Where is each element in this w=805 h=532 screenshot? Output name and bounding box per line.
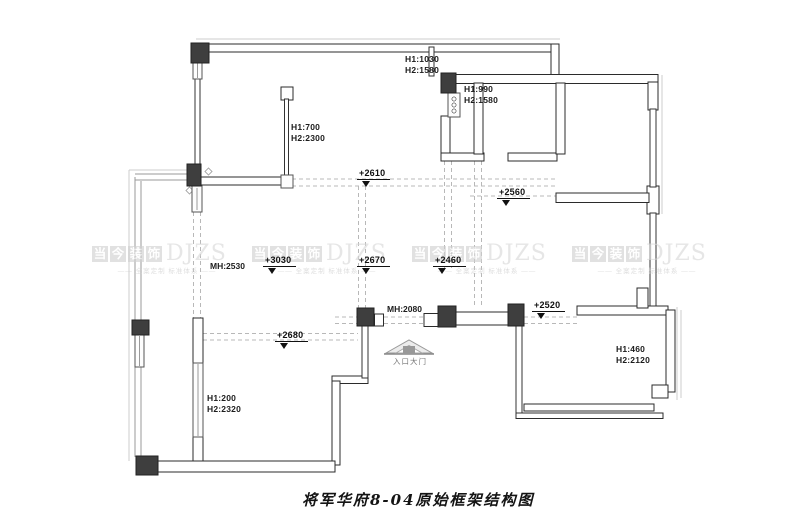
window-height-label: H1:700 H2:2300 (291, 122, 325, 145)
level-value: +2460 (433, 255, 466, 267)
door-height-label: MH:2080 (387, 304, 422, 314)
h1-value: H1:460 (616, 344, 650, 355)
h1-value: H1:700 (291, 122, 325, 133)
window-height-label: H1:460 H2:2120 (616, 344, 650, 367)
entrance-arrow-icon (384, 340, 434, 354)
level-flag-icon (268, 268, 276, 274)
door-height-label: MH:2530 (210, 261, 245, 271)
floor-plan-page: 当 今 装 饰 DJZS —— 全案定制 标准体系 —— 当 今 装 饰 DJZ… (0, 0, 805, 532)
level-value: +3030 (263, 255, 296, 267)
windows (135, 62, 460, 437)
level-flag-icon (438, 268, 446, 274)
h2-value: H2:2120 (616, 355, 650, 366)
entrance-label: 入口大门 (393, 356, 427, 367)
level-value: +2520 (532, 300, 565, 312)
level-flag-icon (280, 343, 288, 349)
level-value: +2610 (357, 168, 390, 180)
level-value: +2680 (275, 330, 308, 342)
level-mark: +2460 (433, 250, 466, 274)
h1-value: H1:200 (207, 393, 241, 404)
level-value: +2560 (497, 187, 530, 199)
level-mark: +3030 (263, 250, 296, 274)
level-mark: +2680 (275, 325, 308, 349)
level-flag-icon (362, 268, 370, 274)
h1-value: H1:990 (464, 84, 498, 95)
outer-party-wall (135, 174, 191, 457)
level-flag-icon (362, 181, 370, 187)
h2-value: H2:2320 (207, 404, 241, 415)
h2-value: H2:1580 (405, 65, 439, 76)
h1-value: H1:1030 (405, 54, 439, 65)
window-height-label: H1:200 H2:2320 (207, 393, 241, 416)
window-height-label: H1:1030 H2:1580 (405, 54, 439, 77)
window-height-label: H1:990 H2:1580 (464, 84, 498, 107)
level-mark: +2520 (532, 295, 565, 319)
level-value: +2670 (357, 255, 390, 267)
h2-value: H2:1580 (464, 95, 498, 106)
floor-plan-drawing (0, 0, 805, 532)
h2-value: H2:2300 (291, 133, 325, 144)
level-flag-icon (502, 200, 510, 206)
level-flag-icon (537, 313, 545, 319)
level-mark: +2610 (357, 163, 390, 187)
level-mark: +2670 (357, 250, 390, 274)
plan-title: 将军华府8-04原始框架结构图 (302, 489, 535, 510)
level-mark: +2560 (497, 182, 530, 206)
